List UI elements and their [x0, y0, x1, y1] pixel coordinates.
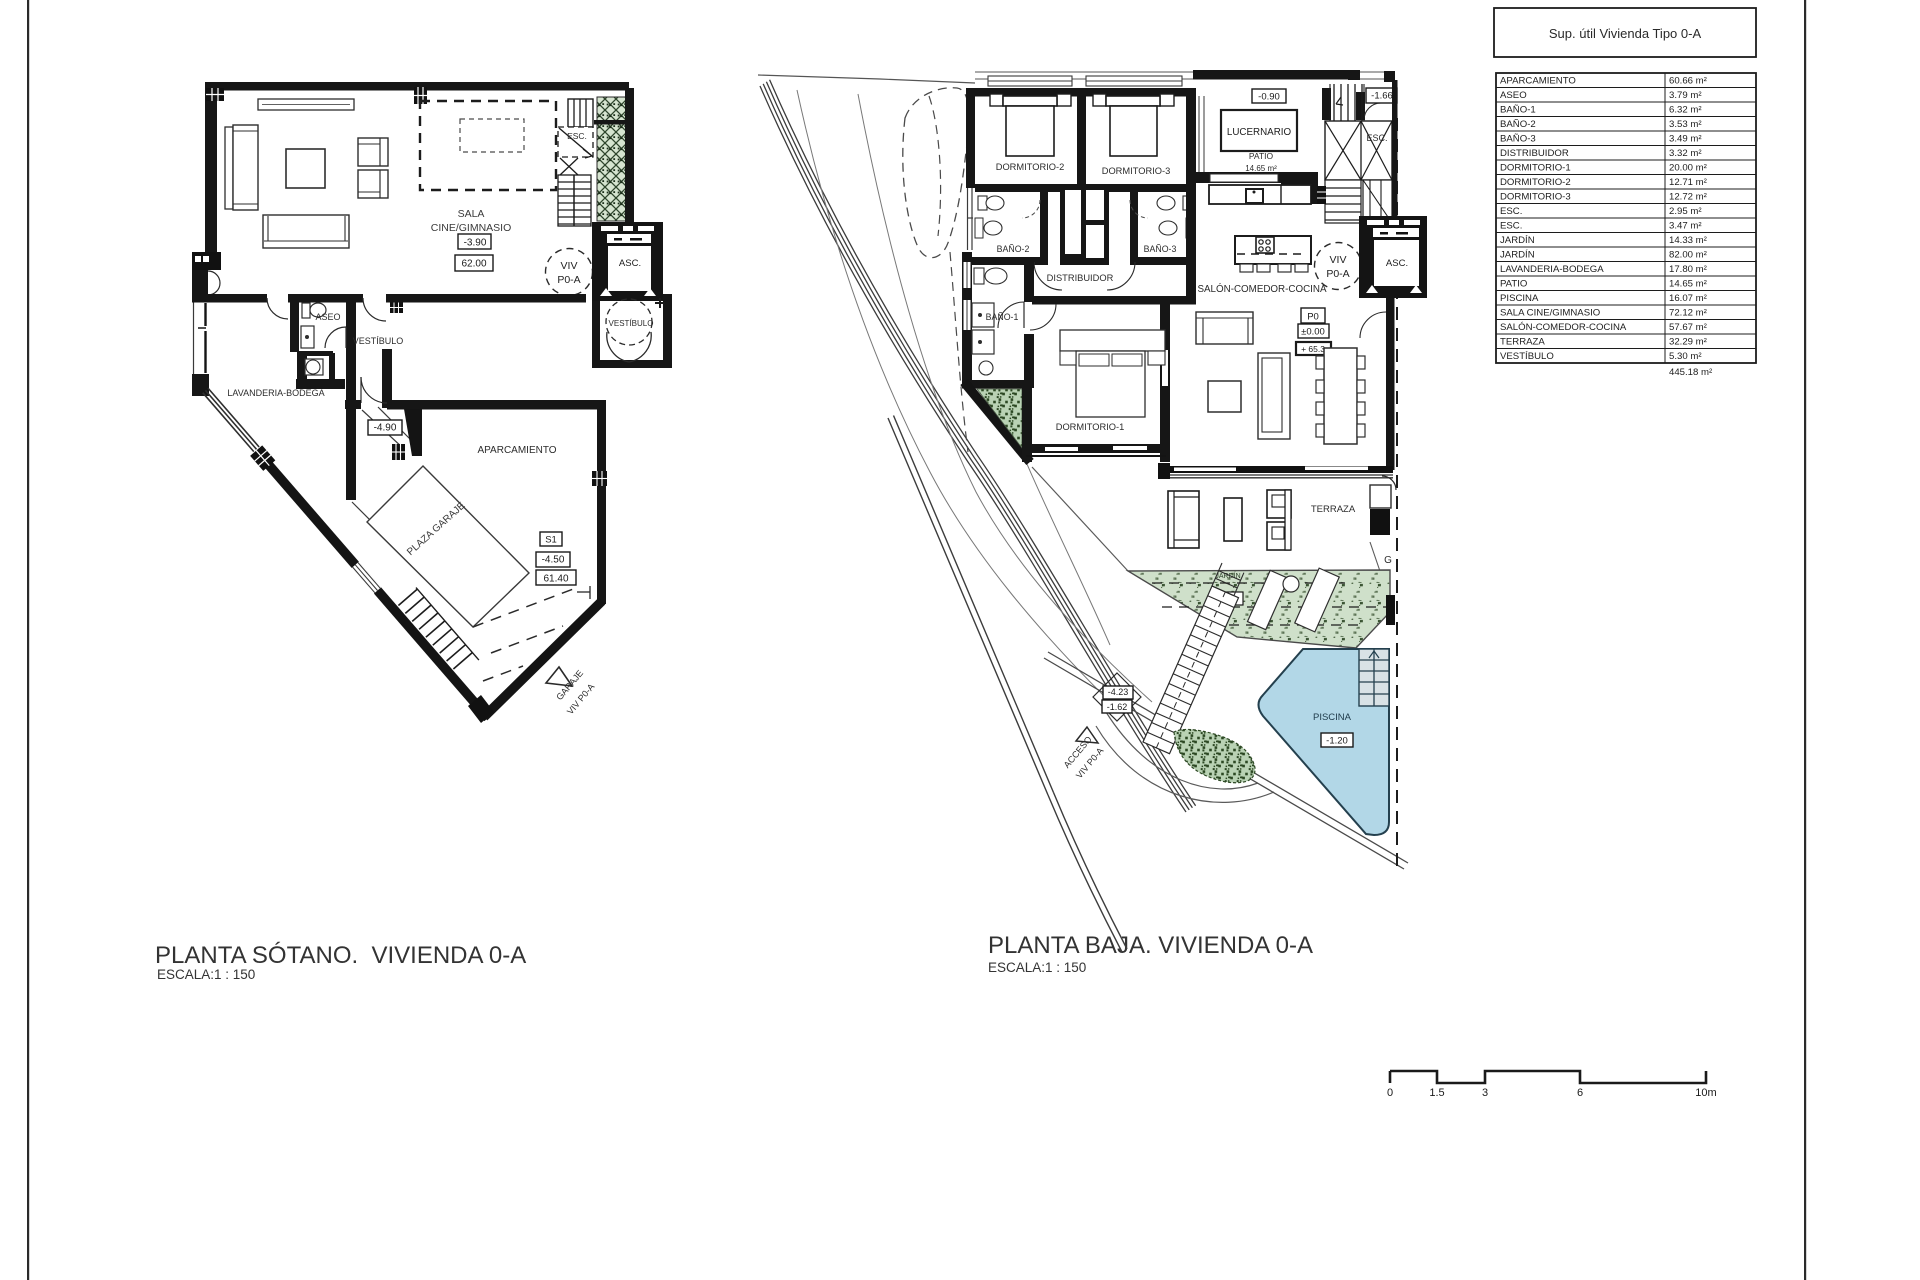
svg-text:DISTRIBUIDOR: DISTRIBUIDOR — [1047, 273, 1114, 283]
svg-text:LUCERNARIO: LUCERNARIO — [1227, 127, 1292, 138]
svg-text:445.18 m²: 445.18 m² — [1669, 367, 1713, 378]
svg-text:PISCINA: PISCINA — [1313, 712, 1352, 723]
svg-text:ESC.: ESC. — [1500, 206, 1522, 217]
svg-text:14.33 m²: 14.33 m² — [1669, 235, 1708, 246]
svg-text:20.00 m²: 20.00 m² — [1669, 163, 1708, 174]
svg-text:DORMITORIO-1: DORMITORIO-1 — [1056, 422, 1125, 432]
svg-text:10m: 10m — [1695, 1087, 1716, 1099]
svg-text:DORMITORIO-2: DORMITORIO-2 — [996, 162, 1065, 172]
svg-text:3.32 m²: 3.32 m² — [1669, 148, 1702, 159]
svg-text:VIV: VIV — [1330, 254, 1347, 266]
svg-text:-4.90: -4.90 — [374, 423, 397, 434]
svg-text:Sup. útil Vivienda Tipo 0-A: Sup. útil Vivienda Tipo 0-A — [1549, 26, 1702, 41]
svg-text:57.67 m²: 57.67 m² — [1669, 322, 1708, 333]
svg-text:VESTÍBULO: VESTÍBULO — [609, 319, 654, 328]
svg-text:ESCALA:1 : 150: ESCALA:1 : 150 — [157, 967, 255, 982]
svg-text:S1: S1 — [545, 534, 557, 545]
svg-text:60.66 m²: 60.66 m² — [1669, 76, 1708, 87]
svg-text:TERRAZA: TERRAZA — [1500, 337, 1545, 348]
svg-text:-1.62: -1.62 — [1107, 702, 1128, 712]
svg-text:ASC.: ASC. — [619, 258, 641, 269]
svg-text:LAVANDERIA-BODEGA: LAVANDERIA-BODEGA — [1500, 264, 1604, 275]
svg-text:PATIO: PATIO — [1249, 151, 1274, 161]
svg-text:SALA: SALA — [458, 208, 485, 220]
svg-text:3: 3 — [1482, 1087, 1488, 1099]
svg-text:72.12 m²: 72.12 m² — [1669, 308, 1708, 319]
svg-text:12.71 m²: 12.71 m² — [1669, 177, 1708, 188]
svg-text:2.95 m²: 2.95 m² — [1669, 206, 1702, 217]
svg-text:12.72 m²: 12.72 m² — [1669, 192, 1708, 203]
svg-text:APARCAMIENTO: APARCAMIENTO — [1500, 76, 1576, 87]
svg-text:3.49 m²: 3.49 m² — [1669, 134, 1702, 145]
svg-text:P0-A: P0-A — [1326, 268, 1349, 280]
svg-text:PISCINA: PISCINA — [1500, 293, 1539, 304]
svg-text:14.65 m²: 14.65 m² — [1669, 279, 1708, 290]
svg-text:VESTÍBULO: VESTÍBULO — [353, 336, 404, 346]
svg-text:DORMITORIO-3: DORMITORIO-3 — [1500, 192, 1571, 203]
svg-text:APARCAMIENTO: APARCAMIENTO — [477, 445, 556, 456]
svg-text:-1.66: -1.66 — [1371, 90, 1393, 101]
svg-text:BAÑO-2: BAÑO-2 — [997, 244, 1030, 254]
svg-text:14.65 m²: 14.65 m² — [1245, 164, 1277, 173]
svg-text:-1.20: -1.20 — [1326, 735, 1348, 746]
svg-text:17.80 m²: 17.80 m² — [1669, 264, 1708, 275]
svg-text:±0.00: ±0.00 — [1301, 326, 1325, 337]
svg-text:ESC.: ESC. — [1500, 221, 1522, 232]
svg-text:BAÑO-3: BAÑO-3 — [1500, 134, 1536, 145]
svg-text:BAÑO-1: BAÑO-1 — [986, 312, 1019, 322]
svg-text:DORMITORIO-3: DORMITORIO-3 — [1102, 166, 1171, 176]
svg-text:DISTRIBUIDOR: DISTRIBUIDOR — [1500, 148, 1569, 159]
svg-text:62.00: 62.00 — [461, 259, 486, 270]
svg-text:-4.23: -4.23 — [1108, 687, 1129, 697]
svg-text:BAÑO-1: BAÑO-1 — [1500, 105, 1536, 116]
svg-text:PLANTA BAJA. VIVIENDA 0-A: PLANTA BAJA. VIVIENDA 0-A — [988, 932, 1313, 959]
svg-text:3.53 m²: 3.53 m² — [1669, 119, 1702, 130]
svg-text:G: G — [1384, 555, 1392, 566]
svg-text:5.30 m²: 5.30 m² — [1669, 351, 1702, 362]
svg-text:ESC.: ESC. — [1366, 133, 1387, 143]
svg-text:-4.50: -4.50 — [542, 555, 565, 566]
svg-text:6: 6 — [1577, 1087, 1583, 1099]
svg-text:JARDÍN: JARDÍN — [1500, 250, 1535, 261]
svg-text:SALA CINE/GIMNASIO: SALA CINE/GIMNASIO — [1500, 308, 1600, 319]
svg-text:P0-A: P0-A — [557, 274, 580, 286]
svg-text:LAVANDERIA-BODEGA: LAVANDERIA-BODEGA — [227, 388, 324, 398]
svg-text:TERRAZA: TERRAZA — [1311, 504, 1356, 515]
svg-text:-3.90: -3.90 — [464, 238, 487, 249]
svg-text:-0.90: -0.90 — [1258, 91, 1280, 102]
svg-text:SALÓN-COMEDOR-COCINA: SALÓN-COMEDOR-COCINA — [1500, 322, 1627, 333]
svg-text:DORMITORIO-2: DORMITORIO-2 — [1500, 177, 1571, 188]
svg-text:61.40: 61.40 — [543, 574, 568, 585]
svg-text:3.79 m²: 3.79 m² — [1669, 90, 1702, 101]
svg-text:ASC.: ASC. — [1386, 258, 1408, 269]
svg-text:VESTÍBULO: VESTÍBULO — [1500, 351, 1554, 362]
svg-text:VIV: VIV — [561, 260, 578, 272]
svg-text:CINE/GIMNASIO: CINE/GIMNASIO — [431, 222, 512, 234]
svg-text:DORMITORIO-1: DORMITORIO-1 — [1500, 163, 1571, 174]
svg-text:JARDÍN: JARDÍN — [1500, 235, 1535, 246]
svg-text:0: 0 — [1387, 1087, 1393, 1099]
svg-text:PLANTA SÓTANO. VIVIENDA 0-A: PLANTA SÓTANO. VIVIENDA 0-A — [155, 942, 526, 969]
svg-text:BAÑO-3: BAÑO-3 — [1144, 244, 1177, 254]
svg-text:SALÓN-COMEDOR-COCINA: SALÓN-COMEDOR-COCINA — [1197, 284, 1326, 295]
svg-text:82.00 m²: 82.00 m² — [1669, 250, 1708, 261]
svg-text:BAÑO-2: BAÑO-2 — [1500, 119, 1536, 130]
svg-text:6.32 m²: 6.32 m² — [1669, 105, 1702, 116]
svg-text:ESCALA:1 : 150: ESCALA:1 : 150 — [988, 960, 1086, 975]
svg-text:ASEO: ASEO — [1500, 90, 1527, 101]
svg-text:32.29 m²: 32.29 m² — [1669, 337, 1708, 348]
svg-text:1.5: 1.5 — [1429, 1087, 1444, 1099]
svg-text:ESC.: ESC. — [567, 131, 587, 141]
svg-text:3.47 m²: 3.47 m² — [1669, 221, 1702, 232]
svg-text:+ 65.3: + 65.3 — [1301, 344, 1325, 354]
svg-text:16.07 m²: 16.07 m² — [1669, 293, 1708, 304]
svg-text:ASEO: ASEO — [315, 312, 340, 322]
svg-text:P0: P0 — [1307, 311, 1319, 322]
svg-text:PATIO: PATIO — [1500, 279, 1527, 290]
